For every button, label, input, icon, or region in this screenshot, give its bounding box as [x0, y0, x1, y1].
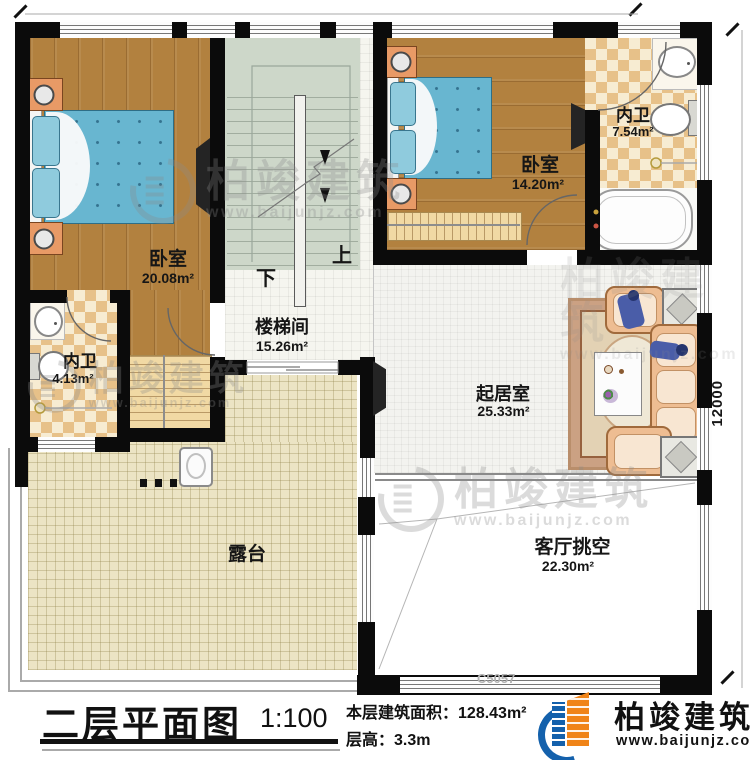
bedroom1-wardrobe-rail — [163, 355, 165, 428]
label-bathroom2-area: 7.54m² — [605, 125, 661, 139]
terrace-parapet-left-outer — [8, 448, 10, 692]
logo-building-blue — [552, 702, 565, 746]
corner-tick-topmid — [628, 2, 642, 16]
label-bathroom1-area: 4.13m² — [43, 372, 103, 386]
floor-height-value: 3.3m — [394, 732, 430, 749]
wall-top-4 — [320, 22, 336, 38]
bedroom1-wardrobe — [118, 355, 212, 430]
label-bedroom2-area: 14.20m² — [498, 177, 578, 192]
bedroom2-tv — [571, 103, 585, 150]
window-stair-top-1 — [187, 22, 235, 38]
floor-height-label: 层高： — [346, 732, 394, 749]
bed1-pillow-top — [32, 116, 60, 166]
label-stair-down: 下 — [252, 268, 280, 290]
washing-machine — [179, 447, 213, 487]
label-bathroom2: 内卫 — [610, 107, 656, 126]
floor-area-value: 128.43m² — [458, 705, 527, 722]
stair-center-rail — [294, 95, 306, 307]
window-void-bottom — [400, 677, 660, 693]
side-table-bottom — [660, 436, 702, 478]
chaise-cushion — [614, 434, 664, 469]
person2-head — [676, 344, 688, 356]
label-bedroom2: 卧室 — [505, 156, 575, 177]
dashed-overhang-line — [140, 479, 180, 487]
terrace-parapet-bottom-outer — [8, 690, 360, 692]
stairhall-strip-floor — [360, 38, 373, 360]
brand-name: 柏竣建筑 — [614, 692, 750, 737]
floor-area-line: 本层建筑面积：128.43m² — [346, 699, 527, 723]
wall-top-2 — [172, 22, 187, 38]
bed2-nightstand-top — [385, 46, 417, 78]
wall-left-terrace-stub — [15, 452, 28, 487]
title-underline-thin — [42, 749, 340, 751]
label-void-area: 22.30m² — [528, 559, 608, 574]
floor-height-line: 层高：3.3m — [346, 726, 430, 750]
bedroom1-tv — [196, 138, 210, 215]
corner-tick-topleft — [13, 4, 27, 18]
drawing-code: C5057 — [477, 671, 515, 686]
livingroom-tv — [373, 361, 386, 416]
stair-steps — [227, 96, 358, 266]
window-terrace-void-2 — [359, 535, 374, 622]
drawing-scale: 1:100 — [260, 703, 328, 734]
table-flower-decor — [603, 389, 618, 403]
bathroom2-bathtub — [589, 189, 693, 251]
wall-bath1-top-a — [30, 290, 67, 303]
label-bedroom1-area: 20.08m² — [123, 271, 213, 286]
label-terrace: 露台 — [224, 545, 270, 566]
bed2-pillow-bottom — [390, 130, 416, 174]
bed1-nightstand-top — [25, 78, 63, 111]
corner-tick-bottomright — [720, 670, 734, 684]
brand-url: www.baijunjz.com — [616, 733, 750, 749]
window-bath1-bottom — [38, 437, 95, 452]
bed2-pillow-top — [390, 82, 416, 126]
label-stairwell: 楼梯间 — [246, 318, 318, 338]
wall-bed2-living-a — [373, 250, 527, 265]
wall-living-terrace — [360, 357, 375, 458]
bedroom2-wardrobe-rail — [387, 224, 520, 226]
sofa-cushion-2 — [656, 370, 696, 404]
window-right-2 — [697, 265, 712, 313]
table-decor-dot1 — [604, 365, 613, 374]
watermark-3: 柏竣建筑 www.baijunjz.com — [378, 466, 654, 532]
bathroom2-sink — [658, 46, 696, 78]
terrace-parapet-bottom-inner — [20, 680, 360, 682]
window-bedroom1-top — [60, 22, 172, 38]
wall-stairhall-bottom-a — [225, 360, 247, 375]
floor-area-label: 本层建筑面积： — [346, 705, 458, 722]
label-bathroom1: 内卫 — [50, 353, 110, 372]
corner-tick-topright — [725, 22, 739, 36]
bedroom2-wardrobe — [387, 212, 522, 241]
label-livingroom-area: 25.33m² — [466, 404, 541, 419]
label-livingroom: 起居室 — [467, 385, 539, 405]
table-decor-dot2 — [619, 369, 624, 374]
coffee-table — [594, 352, 642, 416]
wall-top-5 — [373, 22, 392, 38]
wall-top-6 — [553, 22, 618, 38]
window-bedroom2-top — [392, 22, 553, 38]
window-stair-top-2 — [250, 22, 320, 38]
sliding-door-leaves — [247, 367, 338, 370]
window-bathroom2-top — [618, 22, 680, 38]
title-underline-thick — [40, 739, 338, 744]
window-right-1 — [697, 85, 712, 180]
label-stairwell-area: 15.26m² — [246, 339, 318, 354]
label-stair-up: 上 — [328, 245, 356, 267]
label-void: 客厅挑空 — [525, 538, 620, 559]
watermark-url: www.baijunjz.com — [454, 512, 654, 530]
stair-living-divider — [373, 265, 374, 360]
bathroom1-sink — [34, 306, 63, 337]
wall-top-3 — [235, 22, 250, 38]
void-projection-lines — [379, 483, 695, 669]
void-railing-line2 — [375, 479, 697, 481]
bed2-nightstand-bottom — [385, 178, 417, 210]
wall-terrace-void-1 — [358, 497, 375, 535]
bed1-nightstand-bottom — [25, 222, 63, 255]
label-dimension-12000: 12000 — [710, 361, 727, 445]
window-right-4 — [697, 505, 712, 610]
floorplan-page: 卧室 20.08m² 内卫 4.13m² 楼梯间 15.26m² 下 上 卧室 … — [0, 0, 750, 760]
brand-logo-icon — [538, 690, 610, 756]
wall-bed2-bath2 — [585, 110, 600, 250]
window-terrace-void-1 — [359, 458, 374, 497]
bed1-pillow-bottom — [32, 168, 60, 218]
logo-building-orange — [567, 692, 589, 746]
wall-left — [15, 22, 30, 452]
sliding-door-terrace — [247, 362, 338, 373]
window-stair-top-3 — [336, 22, 373, 38]
label-bedroom1: 卧室 — [123, 250, 213, 271]
wall-wardrobe1-bottom — [118, 428, 225, 442]
wall-terrace-void-2 — [358, 622, 375, 675]
wall-stair-bed2 — [373, 38, 387, 250]
wall-bed2-living-b — [577, 250, 712, 265]
person1-head — [628, 290, 639, 301]
